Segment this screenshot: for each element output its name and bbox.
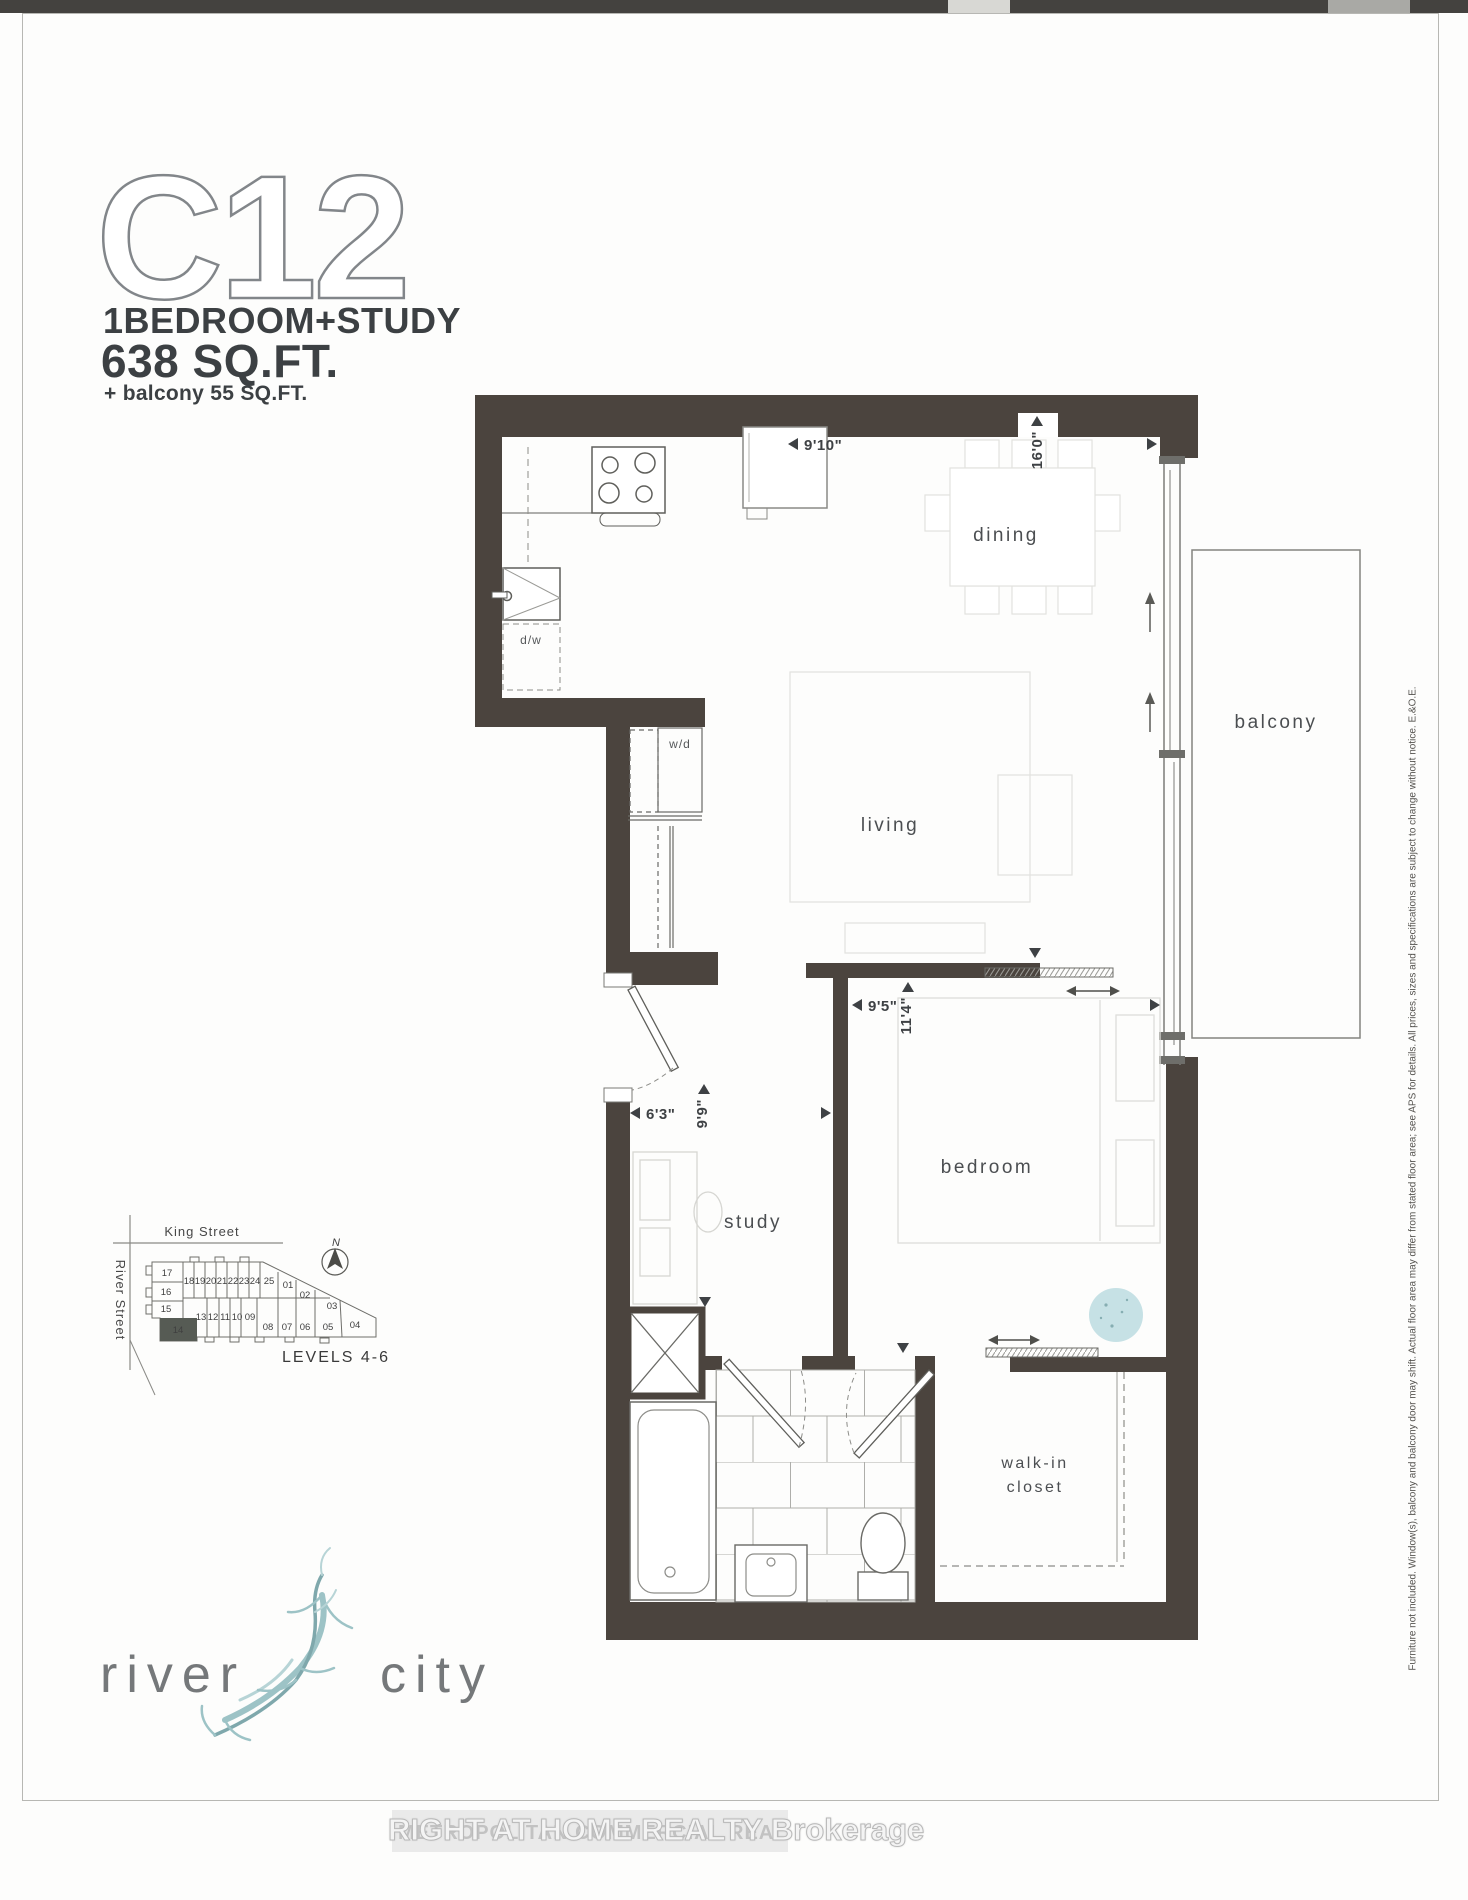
- logo-river: river: [100, 1645, 246, 1705]
- scan-artifact-strip: [0, 0, 1468, 13]
- unit-area: 638 SQ.FT.: [101, 334, 339, 388]
- scan-strip-gap: [1328, 0, 1410, 13]
- balcony-area: + balcony 55 SQ.FT.: [104, 382, 308, 406]
- scan-strip-gap: [948, 0, 1010, 13]
- floorplan-sheet: 9'10" 16'0" 9'5" 11'4" 6'3" 9'9" dining …: [0, 0, 1468, 1900]
- watermark-primary: RIGHT AT HOME REALTY Brokerage: [388, 1812, 792, 1848]
- logo-city: city: [380, 1645, 494, 1705]
- disclaimer-text: Furniture not included. Window(s), balco…: [1408, 555, 1419, 1803]
